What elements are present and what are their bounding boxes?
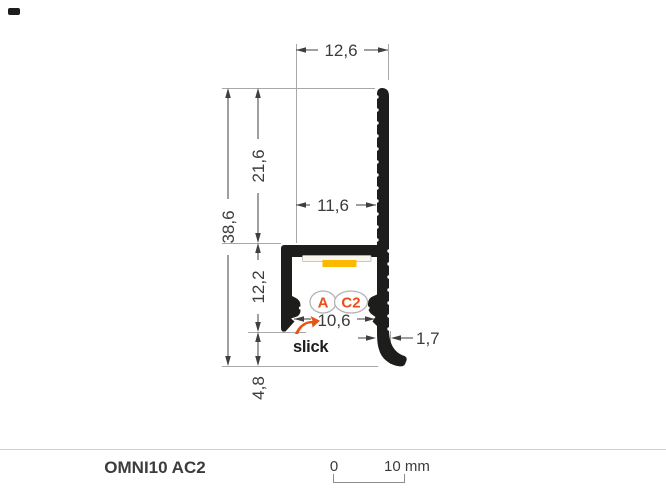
profile-fin xyxy=(377,88,407,366)
scale-bar xyxy=(333,474,405,483)
dim-label-fin-offset: 11,6 xyxy=(317,196,349,215)
profile-drawing: 12,6 11,6 10,6 1,7 38,6 21,6 12,2 4,8 xyxy=(0,0,666,449)
profile-fin-flange xyxy=(368,295,377,327)
variant-badges: A C2 xyxy=(310,291,368,313)
dim-label-foot-height: 4,8 xyxy=(249,376,268,400)
dim-label-top-width: 12,6 xyxy=(324,41,357,60)
product-title: OMNI10 AC2 xyxy=(0,458,310,478)
badge-c2-label: C2 xyxy=(341,295,360,312)
slick-wordmark: slick xyxy=(293,338,329,356)
badge-a-label: A xyxy=(318,295,329,312)
footer-bar: OMNI10 AC2 0 10 mm xyxy=(0,449,666,500)
dim-foot-height xyxy=(255,332,261,366)
dim-label-total-height: 38,6 xyxy=(219,210,238,243)
led-strip xyxy=(323,260,357,267)
dim-label-channel-height: 12,2 xyxy=(249,270,268,303)
scale-zero-label: 0 xyxy=(327,458,341,475)
dim-label-upper-height: 21,6 xyxy=(249,149,268,182)
dim-label-opening-width: 10,6 xyxy=(317,311,350,330)
corner-mark xyxy=(8,8,20,15)
technical-drawing-page: 12,6 11,6 10,6 1,7 38,6 21,6 12,2 4,8 xyxy=(0,0,666,500)
scale-length-label: 10 mm xyxy=(384,458,430,475)
dim-label-wall-thickness: 1,7 xyxy=(416,329,440,348)
